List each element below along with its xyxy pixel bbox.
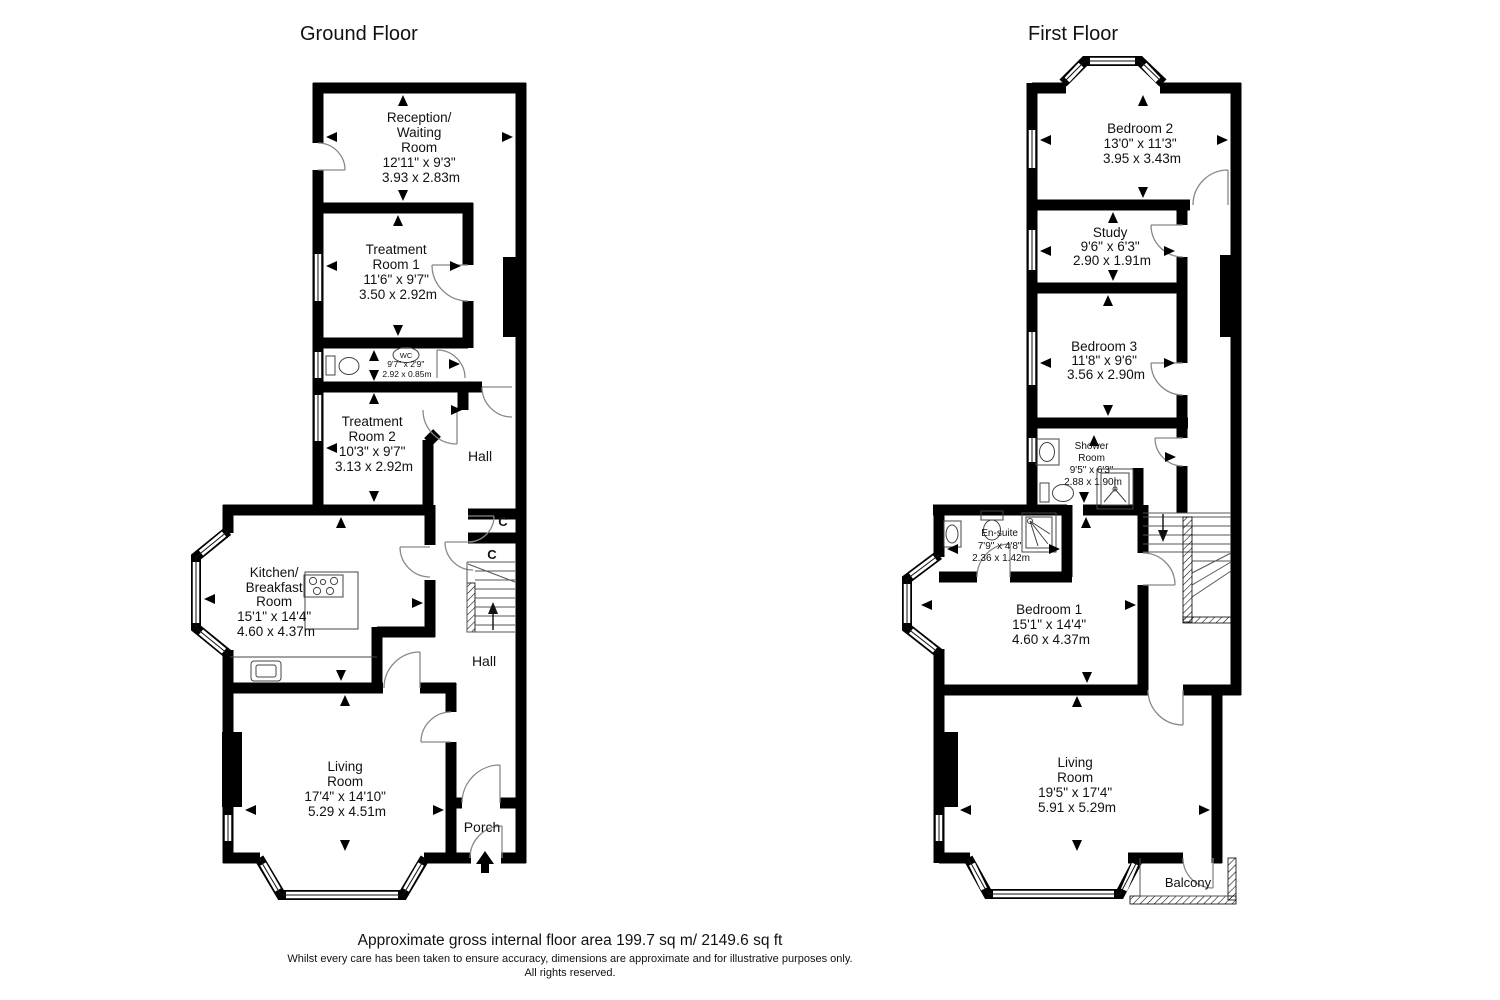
reception-room-label: Reception/ Waiting Room 12'11" x 9'3" 3.… (382, 110, 460, 185)
footer: Approximate gross internal floor area 19… (287, 932, 852, 979)
stairs-up-arrow (488, 602, 498, 614)
porch-label: Porch (464, 819, 501, 835)
bedroom-1-label: Bedroom 1 15'1" x 14'4" 4.60 x 4.37m (1012, 602, 1090, 647)
kitchen-sink (230, 657, 377, 681)
staircase-down (1143, 513, 1231, 623)
entrance-arrow (476, 851, 494, 873)
basin-icon (1036, 439, 1059, 465)
disclaimer-text: Whilst every care has been taken to ensu… (287, 953, 852, 965)
ground-floor-plan: Ground Floor Reception/ Waiting Room 12'… (196, 23, 526, 895)
chimney-breast (1220, 255, 1231, 337)
wc-dimensions: 9'7" x 2'9" 2.92 x 0.85m (382, 359, 431, 379)
basin-icon (944, 521, 961, 547)
closet-lower-label: C (487, 547, 497, 562)
stairs-down-arrow (1158, 530, 1168, 542)
hall-lower-label: Hall (472, 653, 496, 669)
chimney-breast (503, 257, 516, 337)
chimney-breast (222, 732, 242, 807)
living-room-ff-label: Living Room 19'5" x 17'4" 5.91 x 5.29m (1038, 755, 1116, 815)
treatment-room-1-label: Treatment Room 1 11'6" x 9'7" 3.50 x 2.9… (359, 242, 437, 302)
hall-upper-label: Hall (468, 448, 492, 464)
floor-area-text: Approximate gross internal floor area 19… (358, 932, 783, 949)
first-floor-plan: First Floor Bedroom 2 13'0" x 11'3" 3.95… (907, 23, 1241, 904)
living-room-gf-label: Living Room 17'4" x 14'10" 5.29 x 4.51m (304, 759, 389, 819)
treatment-room-2-label: Treatment Room 2 10'3" x 9'7" 3.13 x 2.9… (335, 414, 413, 474)
rights-text: All rights reserved. (524, 967, 615, 979)
bedroom-3-label: Bedroom 3 11'8" x 9'6" 3.56 x 2.90m (1067, 339, 1145, 382)
staircase-up (467, 562, 515, 632)
first-floor-title: First Floor (1028, 23, 1118, 45)
chimney-breast (944, 732, 958, 807)
ensuite-label: En-suite 7'9" x 4'8" 2.36 x 1.42m (972, 528, 1030, 564)
closet-upper-label: C (498, 514, 508, 529)
toilet-icon (326, 356, 359, 375)
ground-floor-title: Ground Floor (300, 23, 418, 45)
shower-room-label: Shower Room 9'5" x 6'3" 2.88 x 1.90m (1064, 441, 1122, 488)
floorplan-canvas: Ground Floor Reception/ Waiting Room 12'… (0, 0, 1500, 1000)
kitchen-label: Kitchen/ Breakfast Room 15'1" x 14'4" 4.… (237, 565, 315, 639)
balcony-label: Balcony (1165, 875, 1212, 890)
bedroom-2-label: Bedroom 2 13'0" x 11'3" 3.95 x 3.43m (1103, 121, 1181, 166)
floorplan-page: Ground Floor Reception/ Waiting Room 12'… (0, 0, 1500, 1000)
study-label: Study 9'6" x 6'3" 2.90 x 1.91m (1073, 225, 1151, 268)
